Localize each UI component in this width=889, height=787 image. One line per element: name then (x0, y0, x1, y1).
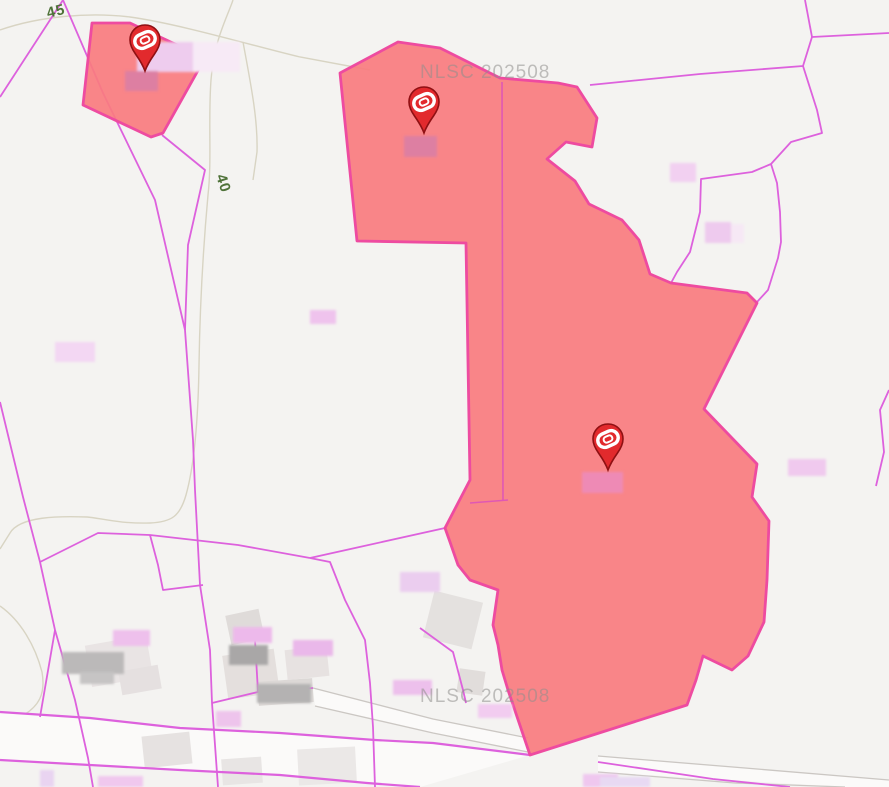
redacted-label (216, 711, 241, 727)
redacted-label-marker-2 (404, 136, 437, 157)
redacted-label (670, 163, 696, 182)
redacted-text-gray (257, 684, 311, 703)
nlsc-watermark-bottom: NLSC 202508 (420, 686, 550, 707)
redacted-label (98, 776, 143, 787)
redacted-label (600, 777, 650, 787)
inner-parcel-line (502, 82, 503, 500)
redacted-label-marker-1 (125, 71, 158, 91)
redacted-text-gray (80, 672, 114, 684)
redacted-label (310, 310, 336, 324)
nlsc-watermark-top: NLSC 202508 (420, 62, 550, 83)
redacted-label (400, 572, 440, 592)
map-svg[interactable]: NLSC 202508 NLSC 202508 45 40 (0, 0, 889, 787)
redacted-label (55, 342, 95, 362)
redacted-label (705, 222, 731, 243)
building (141, 732, 192, 769)
building (221, 757, 263, 786)
redacted-label (40, 770, 54, 787)
redacted-label (233, 627, 272, 643)
redacted-label (113, 630, 150, 646)
redacted-label-marker-3 (582, 472, 623, 493)
map-canvas[interactable]: NLSC 202508 NLSC 202508 45 40 (0, 0, 889, 787)
redacted-label (293, 640, 333, 656)
redacted-text-gray (229, 645, 268, 665)
redacted-label (731, 224, 744, 243)
redacted-label (788, 459, 826, 476)
redacted-text-gray (62, 652, 124, 674)
redacted-label (193, 42, 240, 72)
